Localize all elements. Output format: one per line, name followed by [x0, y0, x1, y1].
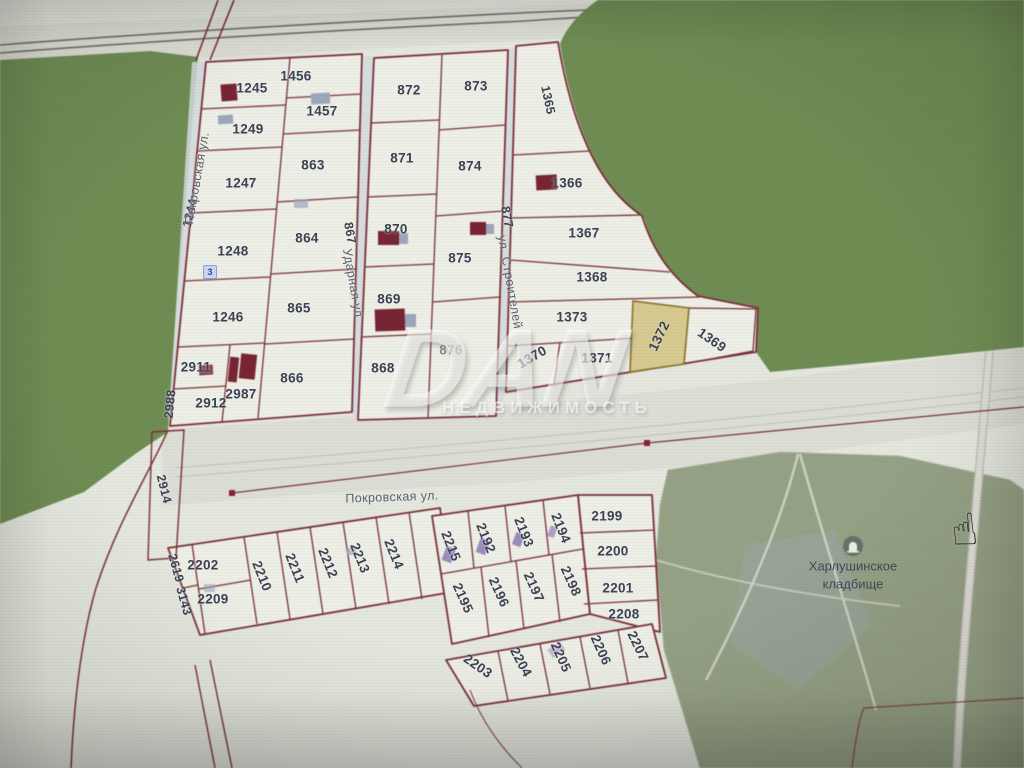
- selected-parcel[interactable]: [630, 301, 689, 372]
- route-badge: 3: [203, 265, 217, 279]
- map-screenshot: 1245145614571249863124712488648651246291…: [0, 0, 1024, 768]
- cemetery-label-line1: Харлушинское: [809, 557, 897, 575]
- parcel-block-lower-left: [168, 508, 452, 635]
- cemetery-label-line2: кладбище: [809, 575, 897, 593]
- cemetery-icon: [843, 536, 863, 556]
- hand-cursor-icon: ☝: [948, 504, 980, 558]
- cemetery-label: Харлушинское кладбище: [809, 557, 897, 592]
- parcel-block-lower-middle: [432, 495, 660, 644]
- map-canvas[interactable]: [0, 0, 1024, 768]
